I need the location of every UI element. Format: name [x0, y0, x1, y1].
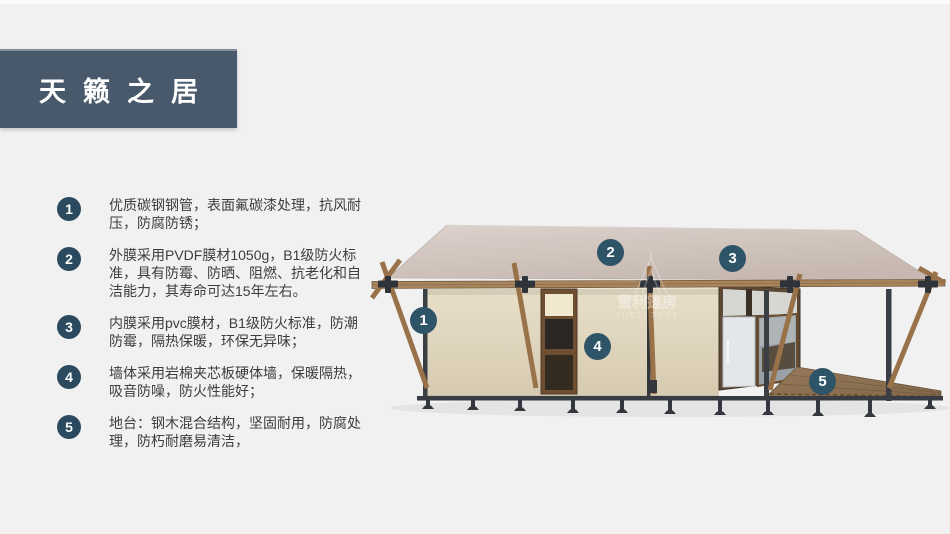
callout-badge-2: 2	[597, 239, 624, 266]
feature-number-badge: 3	[57, 315, 81, 339]
feature-text: 内膜采用pvc膜材，B1级防火标准，防潮防霉，隔热保暖，环保无异味；	[109, 314, 361, 350]
feature-number-badge: 1	[57, 197, 81, 221]
feature-item: 1 优质碳钢钢管，表面氟碳漆处理，抗风耐压，防腐防锈；	[57, 196, 377, 232]
feature-text: 地台：钢木混合结构，坚固耐用，防腐处理，防朽耐磨易清洁，	[109, 414, 361, 450]
roof-canopy	[388, 225, 933, 280]
tent-illustration: 雪利篷房 XUELI TENT	[370, 210, 950, 440]
page-title: 天籁之居	[22, 70, 215, 109]
feature-number-badge: 5	[57, 415, 81, 439]
feature-item: 3 内膜采用pvc膜材，B1级防火标准，防潮防霉，隔热保暖，环保无异味；	[57, 314, 377, 350]
watermark-en: XUELI TENT	[615, 310, 679, 320]
callout-badge-4: 4	[584, 333, 611, 360]
top-strip	[0, 0, 950, 4]
feature-number-badge: 2	[57, 247, 81, 271]
feature-text: 墙体采用岩棉夹芯板硬体墙，保暖隔热，吸音防噪，防火性能好；	[109, 364, 361, 400]
feature-text: 外膜采用PVDF膜材1050g，B1级防火标准，具有防霉、防晒、阻燃、抗老化和自…	[109, 246, 361, 300]
tent-diagram: 雪利篷房 XUELI TENT 1 2 3 4 5	[370, 210, 950, 440]
feature-item: 4 墙体采用岩棉夹芯板硬体墙，保暖隔热，吸音防噪，防火性能好；	[57, 364, 377, 400]
title-banner: 天籁之居	[0, 49, 237, 128]
middle-door	[541, 289, 577, 394]
feature-item: 5 地台：钢木混合结构，坚固耐用，防腐处理，防朽耐磨易清洁，	[57, 414, 377, 450]
deck-platform	[766, 367, 941, 397]
glass-door-section	[719, 285, 800, 390]
features-list: 1 优质碳钢钢管，表面氟碳漆处理，抗风耐压，防腐防锈； 2 外膜采用PVDF膜材…	[57, 196, 377, 464]
slide: 天籁之居 1 优质碳钢钢管，表面氟碳漆处理，抗风耐压，防腐防锈； 2 外膜采用P…	[0, 0, 950, 534]
callout-badge-5: 5	[809, 368, 836, 395]
callout-badge-1: 1	[410, 307, 437, 334]
feature-number-badge: 4	[57, 365, 81, 389]
feature-item: 2 外膜采用PVDF膜材1050g，B1级防火标准，具有防霉、防晒、阻燃、抗老化…	[57, 246, 377, 300]
watermark-cn: 雪利篷房	[617, 293, 677, 311]
pole-base-bracket	[647, 380, 657, 393]
feature-text: 优质碳钢钢管，表面氟碳漆处理，抗风耐压，防腐防锈；	[109, 196, 361, 232]
callout-badge-3: 3	[719, 245, 746, 272]
